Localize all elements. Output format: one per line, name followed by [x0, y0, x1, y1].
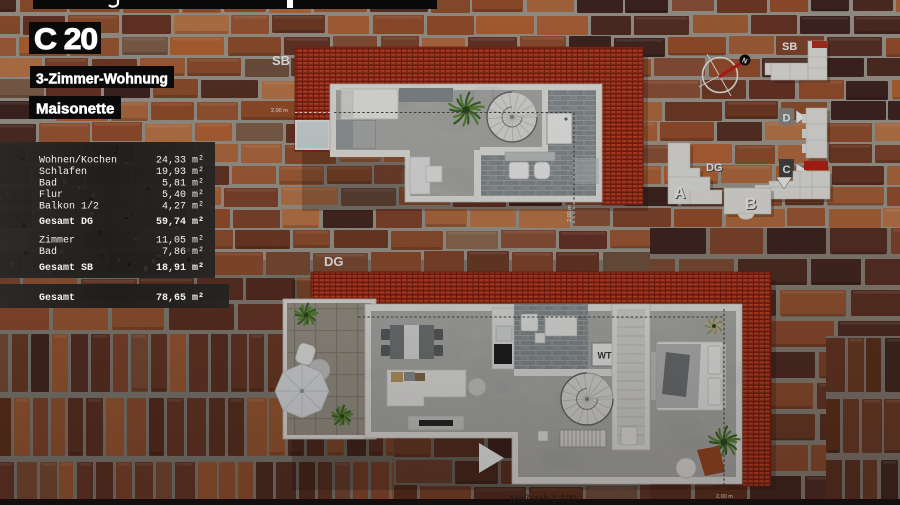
svg-text:3-Zimmer-Wohnung: 3-Zimmer-Wohnung [36, 71, 168, 88]
svg-text:24,33 m²: 24,33 m² [156, 156, 204, 167]
svg-text:Schlafen: Schlafen [39, 166, 87, 178]
svg-text:Gesamt DG: Gesamt DG [39, 217, 93, 228]
svg-text:18,91 m²: 18,91 m² [156, 263, 204, 274]
svg-text:Gesamt SB: Gesamt SB [39, 263, 93, 274]
svg-text:Wohnen/Kochen: Wohnen/Kochen [39, 155, 117, 167]
svg-text:Zimmer: Zimmer [39, 235, 75, 247]
svg-text:5,40 m²: 5,40 m² [162, 190, 204, 201]
svg-text:5,81 m²: 5,81 m² [162, 179, 204, 190]
svg-text:Balkon 1/2: Balkon 1/2 [39, 201, 99, 213]
svg-text:Bad: Bad [39, 178, 57, 190]
svg-text:Flur: Flur [39, 189, 63, 201]
svg-text:4,27 m²: 4,27 m² [162, 202, 204, 213]
svg-text:C 20: C 20 [34, 23, 97, 56]
svg-text:Gesamt: Gesamt [39, 293, 75, 304]
svg-text:7,86 m²: 7,86 m² [162, 247, 204, 258]
svg-text:19,93 m²: 19,93 m² [156, 167, 204, 178]
svg-text:78,65 m²: 78,65 m² [156, 293, 204, 304]
svg-text:59,74 m²: 59,74 m² [156, 217, 204, 228]
svg-text:Bad: Bad [39, 246, 57, 258]
svg-text:11,05 m²: 11,05 m² [156, 236, 204, 247]
svg-text:Maisonette: Maisonette [36, 101, 114, 118]
